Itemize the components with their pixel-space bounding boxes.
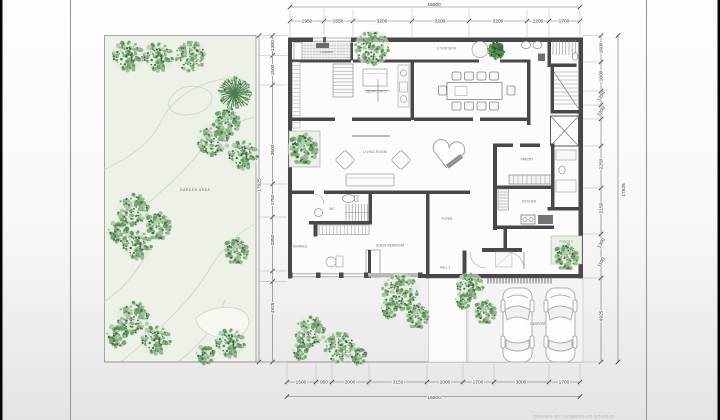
svg-text:3200: 3200	[493, 19, 504, 25]
svg-text:1500: 1500	[270, 64, 276, 75]
svg-text:3200: 3200	[435, 19, 446, 25]
svg-text:2150: 2150	[598, 202, 604, 213]
svg-text:KITCHEN: KITCHEN	[522, 200, 537, 204]
svg-text:PORCH 2: PORCH 2	[559, 240, 573, 244]
svg-text:DRAWN BY HOMEPLAN STUDIO: DRAWN BY HOMEPLAN STUDIO	[534, 414, 615, 419]
svg-text:BEDROOM 1: BEDROOM 1	[366, 90, 387, 94]
svg-text:3200: 3200	[377, 19, 388, 25]
svg-text:1950: 1950	[302, 19, 313, 25]
svg-text:1700: 1700	[559, 380, 570, 386]
svg-text:GUEST BEDROOM: GUEST BEDROOM	[376, 244, 405, 248]
svg-text:950: 950	[320, 380, 328, 386]
svg-text:CORRIDOR: CORRIDOR	[437, 47, 457, 51]
svg-text:17925: 17925	[621, 183, 627, 197]
svg-text:16000: 16000	[427, 395, 441, 401]
svg-text:2000: 2000	[440, 380, 451, 386]
svg-text:1750: 1750	[270, 194, 276, 205]
svg-text:1600: 1600	[598, 42, 604, 53]
svg-text:16000: 16000	[427, 2, 441, 8]
svg-text:3000: 3000	[516, 380, 527, 386]
svg-text:3600: 3600	[270, 144, 276, 155]
svg-text:1600: 1600	[598, 70, 604, 81]
svg-text:4925: 4925	[598, 310, 604, 321]
svg-text:1300: 1300	[270, 40, 276, 51]
svg-text:2000: 2000	[345, 380, 356, 386]
svg-text:1500: 1500	[296, 380, 307, 386]
svg-text:LAUNDRY: LAUNDRY	[320, 50, 333, 54]
svg-text:1700: 1700	[473, 380, 484, 386]
svg-text:HALL 2: HALL 2	[440, 266, 451, 270]
svg-text:3150: 3150	[393, 380, 404, 386]
svg-text:CARPORT: CARPORT	[530, 322, 546, 326]
svg-text:1200: 1200	[533, 19, 544, 25]
svg-text:2250: 2250	[598, 158, 604, 169]
svg-text:PANTRY: PANTRY	[521, 158, 535, 162]
svg-text:TERRACE: TERRACE	[292, 245, 307, 249]
svg-text:LIVING ROOM: LIVING ROOM	[363, 150, 387, 154]
svg-text:WC: WC	[329, 207, 335, 211]
svg-text:17925: 17925	[256, 178, 262, 192]
svg-text:2850: 2850	[270, 234, 276, 245]
svg-text:1700: 1700	[559, 19, 570, 25]
svg-text:GARDEN AREA: GARDEN AREA	[180, 188, 211, 192]
svg-text:4925: 4925	[270, 302, 276, 313]
svg-text:1550: 1550	[333, 19, 344, 25]
svg-text:FOYER: FOYER	[442, 217, 454, 221]
